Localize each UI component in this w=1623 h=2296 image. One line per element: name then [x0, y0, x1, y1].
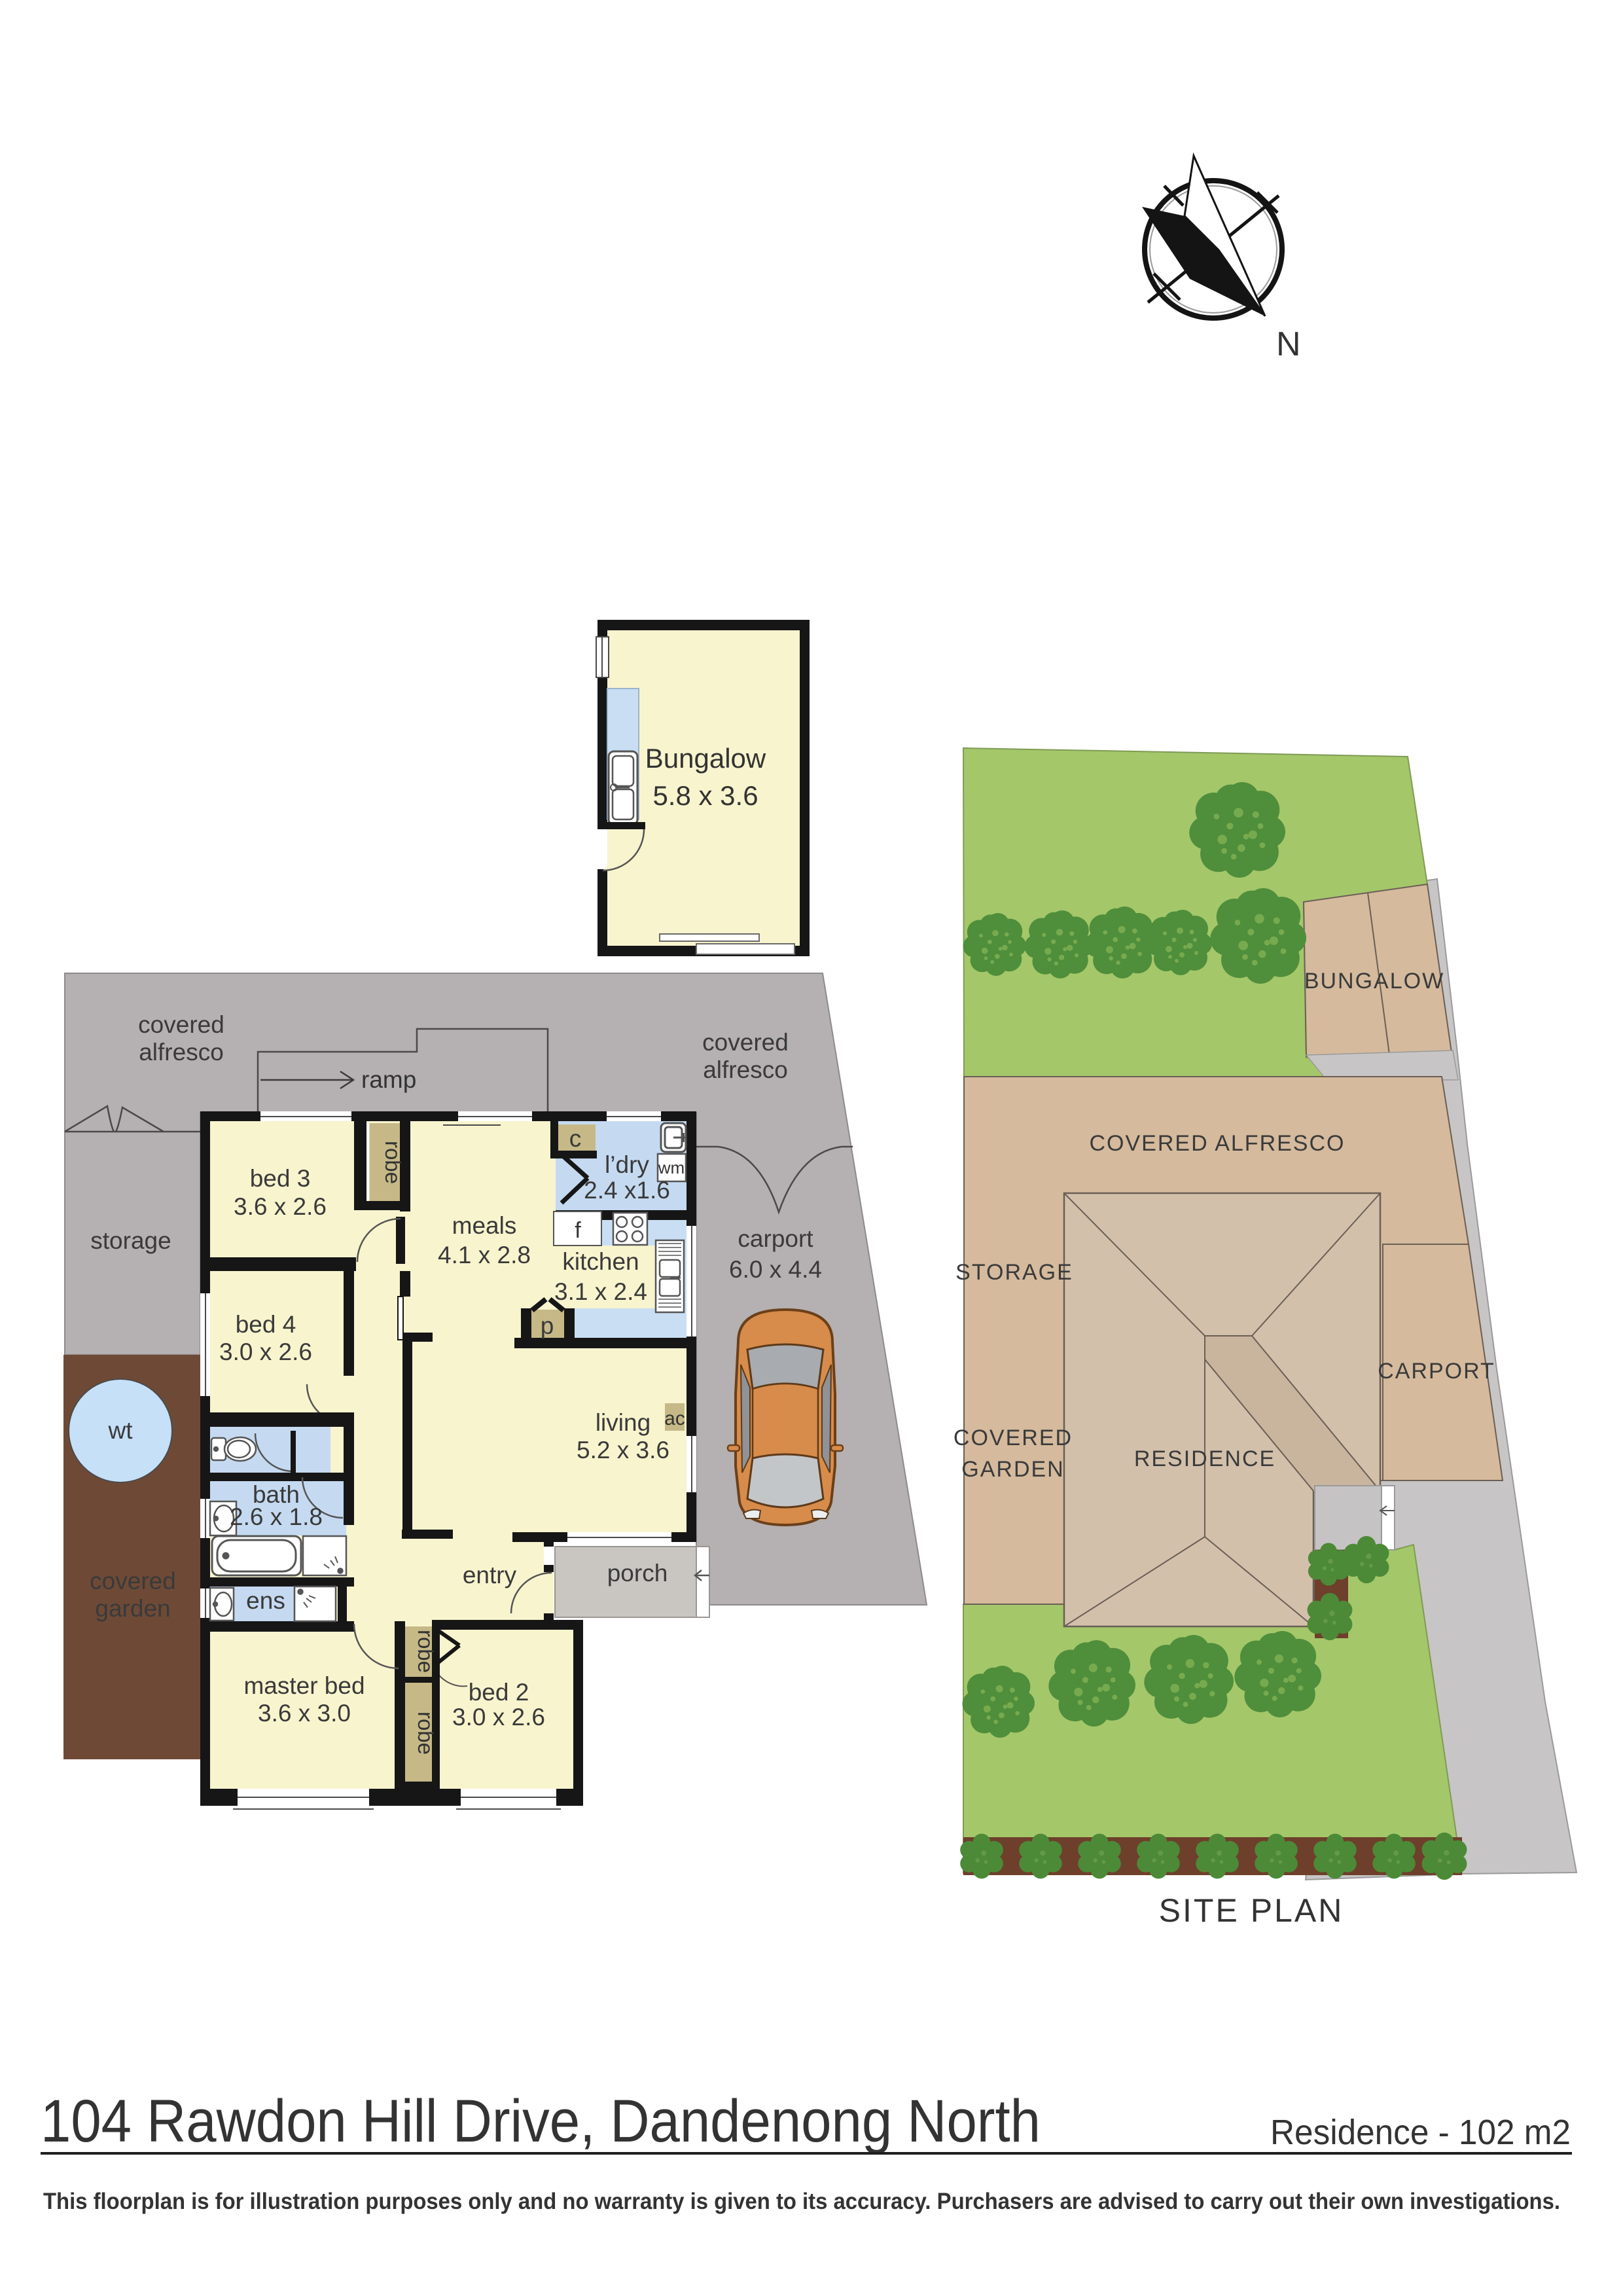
- svg-text:l’dry: l’dry: [605, 1151, 649, 1178]
- svg-text:ac: ac: [664, 1408, 685, 1429]
- svg-text:N: N: [1276, 325, 1301, 363]
- svg-text:covered: covered: [702, 1029, 789, 1056]
- svg-text:ramp: ramp: [361, 1066, 416, 1093]
- svg-text:Residence - 102 m2: Residence - 102 m2: [1270, 2113, 1571, 2152]
- svg-text:alfresco: alfresco: [703, 1056, 788, 1083]
- svg-text:RESIDENCE: RESIDENCE: [1134, 1446, 1275, 1471]
- svg-text:6.0 x 4.4: 6.0 x 4.4: [729, 1256, 822, 1283]
- svg-text:3.6 x 2.6: 3.6 x 2.6: [234, 1193, 327, 1220]
- svg-text:3.0 x 2.6: 3.0 x 2.6: [219, 1338, 312, 1365]
- svg-text:GARDEN: GARDEN: [961, 1457, 1064, 1482]
- svg-text:kitchen: kitchen: [562, 1248, 639, 1275]
- svg-text:alfresco: alfresco: [139, 1039, 224, 1066]
- svg-text:3.6 x 3.0: 3.6 x 3.0: [258, 1700, 351, 1727]
- svg-text:5.8 x 3.6: 5.8 x 3.6: [652, 780, 758, 811]
- svg-text:p: p: [541, 1312, 554, 1339]
- svg-text:STORAGE: STORAGE: [955, 1260, 1073, 1285]
- svg-text:covered: covered: [90, 1568, 176, 1594]
- svg-text:garden: garden: [95, 1595, 170, 1622]
- svg-text:entry: entry: [463, 1562, 517, 1588]
- svg-text:wm: wm: [658, 1158, 685, 1177]
- svg-text:robe: robe: [381, 1141, 405, 1184]
- svg-text:living: living: [596, 1409, 651, 1436]
- svg-text:meals: meals: [452, 1212, 517, 1239]
- svg-text:SITE PLAN: SITE PLAN: [1159, 1892, 1344, 1929]
- svg-text:104 Rawdon Hill Drive, Dandeno: 104 Rawdon Hill Drive, Dandenong North: [41, 2088, 1041, 2155]
- svg-text:ens: ens: [246, 1587, 285, 1614]
- svg-text:c: c: [569, 1125, 582, 1152]
- svg-text:robe: robe: [414, 1712, 438, 1755]
- svg-text:bed 2: bed 2: [469, 1679, 529, 1706]
- svg-text:robe: robe: [414, 1630, 438, 1673]
- svg-text:2.4 x1.6: 2.4 x1.6: [584, 1177, 670, 1204]
- svg-text:wt: wt: [108, 1417, 134, 1444]
- svg-text:3.1 x 2.4: 3.1 x 2.4: [554, 1278, 647, 1305]
- svg-text:master bed: master bed: [243, 1672, 365, 1699]
- svg-text:porch: porch: [607, 1560, 668, 1587]
- svg-text:bed 4: bed 4: [236, 1311, 296, 1338]
- svg-text:2.6 x 1.8: 2.6 x 1.8: [230, 1503, 323, 1530]
- svg-text:covered: covered: [138, 1011, 224, 1038]
- svg-text:5.2 x 3.6: 5.2 x 3.6: [577, 1437, 669, 1463]
- svg-text:3.0 x 2.6: 3.0 x 2.6: [452, 1704, 545, 1731]
- svg-text:storage: storage: [90, 1227, 171, 1254]
- svg-text:bed 3: bed 3: [250, 1165, 311, 1192]
- svg-text:This floorplan is for illustra: This floorplan is for illustration purpo…: [43, 2189, 1560, 2214]
- svg-text:BUNGALOW: BUNGALOW: [1304, 969, 1444, 994]
- svg-text:Bungalow: Bungalow: [645, 743, 766, 774]
- svg-text:4.1 x 2.8: 4.1 x 2.8: [438, 1242, 531, 1268]
- svg-text:f: f: [575, 1218, 581, 1243]
- svg-text:COVERED ALFRESCO: COVERED ALFRESCO: [1090, 1131, 1346, 1156]
- svg-text:CARPORT: CARPORT: [1378, 1359, 1495, 1384]
- svg-text:COVERED: COVERED: [954, 1426, 1073, 1450]
- svg-text:carport: carport: [738, 1225, 813, 1252]
